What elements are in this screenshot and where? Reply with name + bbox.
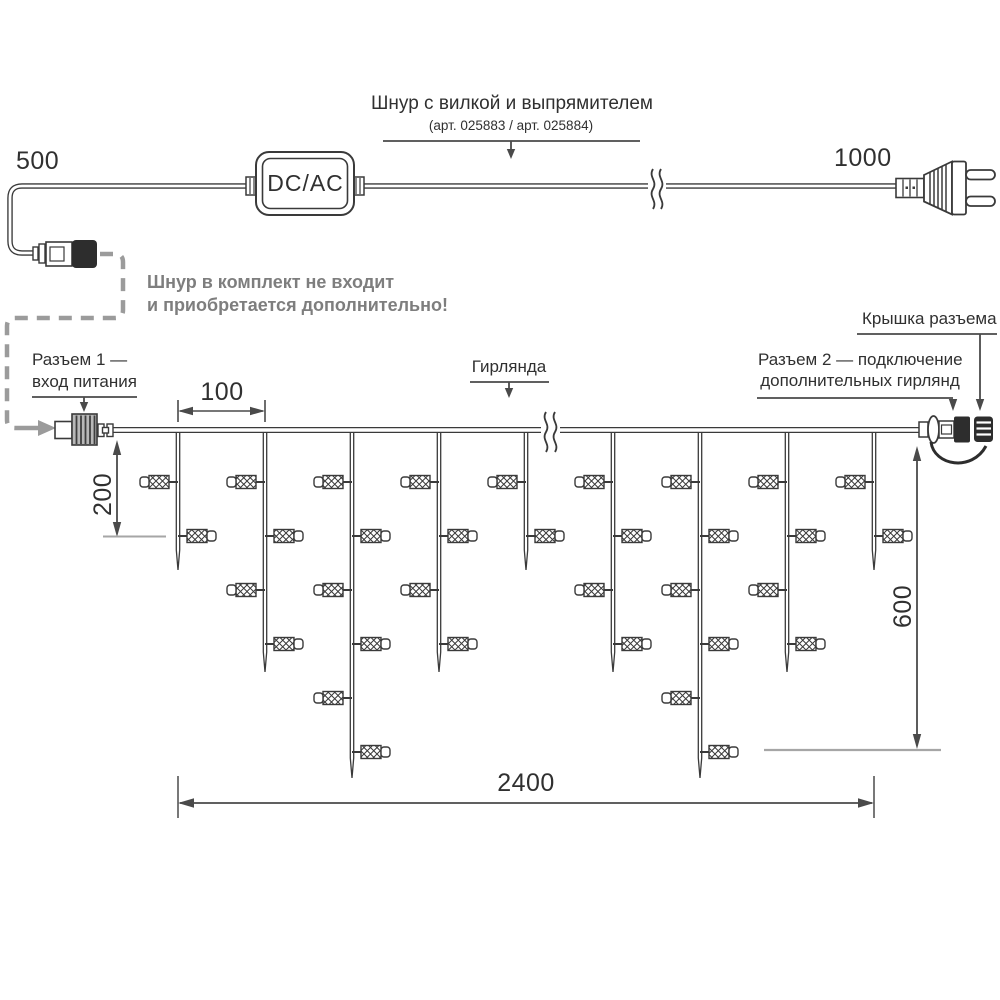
garland-drops xyxy=(140,433,912,778)
power-cord-connector xyxy=(33,240,97,268)
cap-label: Крышка разъема xyxy=(862,308,997,330)
led-bulb-icon xyxy=(796,530,816,543)
led-cap xyxy=(488,477,497,487)
led-bulb-icon xyxy=(448,530,468,543)
connector1-label-line1: Разъем 1 — xyxy=(32,349,137,371)
led-cap xyxy=(662,585,671,595)
plug-prong-top xyxy=(966,170,995,180)
cord-label: Шнур с вилкой и выпрямителем (арт. 02588… xyxy=(371,93,651,133)
led-bulb-icon xyxy=(535,530,555,543)
led-cap xyxy=(381,639,390,649)
garland-drop xyxy=(872,433,875,570)
led-cap xyxy=(729,747,738,757)
connector2-plug xyxy=(919,416,970,443)
connector2-label-line2: дополнительных гирлянд xyxy=(758,370,962,391)
dim-200-label: 200 xyxy=(89,473,118,516)
led-bulb-icon xyxy=(671,476,691,489)
leader-connector2-label xyxy=(757,398,957,411)
diagram-canvas: 500 1000 Шнур с вилкой и выпрямителем (а… xyxy=(0,0,1000,1000)
garland-drop xyxy=(698,433,701,778)
cap-tether xyxy=(931,442,986,463)
connector1-label: Разъем 1 — вход питания xyxy=(32,349,137,393)
connector1-label-line2: вход питания xyxy=(32,371,137,393)
led-cap xyxy=(207,531,216,541)
led-cap xyxy=(555,531,564,541)
led-cap xyxy=(662,477,671,487)
led-bulb-icon xyxy=(361,638,381,651)
leader-garland-label xyxy=(470,382,549,398)
led-cap xyxy=(816,531,825,541)
leader-connector1-label xyxy=(32,397,137,412)
dim-600-label: 600 xyxy=(889,585,918,628)
note-line2: и приобретается дополнительно! xyxy=(147,294,448,317)
led-bulb-icon xyxy=(883,530,903,543)
led-bulb-icon xyxy=(622,638,642,651)
cord-label-title: Шнур с вилкой и выпрямителем xyxy=(371,93,651,115)
led-bulb-icon xyxy=(236,476,256,489)
led-cap xyxy=(227,585,236,595)
led-cap xyxy=(314,693,323,703)
led-cap xyxy=(836,477,845,487)
garland-label: Гирлянда xyxy=(440,356,578,378)
led-bulb-icon xyxy=(845,476,865,489)
led-cap xyxy=(816,639,825,649)
garland-drop xyxy=(263,433,266,672)
plug-prong-bottom xyxy=(966,197,995,207)
cord-break-icon xyxy=(648,169,666,209)
led-cap xyxy=(401,477,410,487)
led-cap xyxy=(729,639,738,649)
note-line1: Шнур в комплект не входит xyxy=(147,271,448,294)
led-cap xyxy=(468,531,477,541)
led-cap xyxy=(294,531,303,541)
garland-drop xyxy=(437,433,440,672)
led-bulb-icon xyxy=(709,746,729,759)
led-cap xyxy=(314,477,323,487)
connector2-label: Разъем 2 — подключение дополнительных ги… xyxy=(758,349,962,391)
led-bulb-icon xyxy=(236,584,256,597)
led-cap xyxy=(381,747,390,757)
led-cap xyxy=(381,531,390,541)
led-cap xyxy=(642,531,651,541)
led-bulb-icon xyxy=(709,638,729,651)
led-cap xyxy=(575,477,584,487)
led-cap xyxy=(140,477,149,487)
led-cap xyxy=(729,531,738,541)
dashed-guide-line xyxy=(7,254,123,436)
led-bulb-icon xyxy=(671,584,691,597)
led-bulb-icon xyxy=(187,530,207,543)
dim-100-label: 100 xyxy=(179,378,265,407)
led-cap xyxy=(575,585,584,595)
led-cap xyxy=(662,693,671,703)
led-bulb-icon xyxy=(796,638,816,651)
led-cap xyxy=(903,531,912,541)
led-bulb-icon xyxy=(361,530,381,543)
converter-label: DC/AC xyxy=(257,170,354,197)
led-bulb-icon xyxy=(323,584,343,597)
led-cap xyxy=(642,639,651,649)
led-cap xyxy=(294,639,303,649)
guide-arrow-icon xyxy=(38,420,56,436)
led-cap xyxy=(401,585,410,595)
led-cap xyxy=(314,585,323,595)
led-bulb-icon xyxy=(671,692,691,705)
led-cap xyxy=(749,585,758,595)
led-bulb-icon xyxy=(323,692,343,705)
dim-2400-label: 2400 xyxy=(468,769,584,798)
note-text: Шнур в комплект не входит и приобретаетс… xyxy=(147,271,448,317)
led-bulb-icon xyxy=(410,584,430,597)
led-bulb-icon xyxy=(323,476,343,489)
garland-drop xyxy=(350,433,353,778)
led-cap xyxy=(468,639,477,649)
led-bulb-icon xyxy=(497,476,517,489)
led-bulb-icon xyxy=(709,530,729,543)
dim-500-label: 500 xyxy=(16,147,59,176)
garland-drop xyxy=(611,433,614,672)
led-bulb-icon xyxy=(584,476,604,489)
led-bulb-icon xyxy=(149,476,169,489)
led-bulb-icon xyxy=(758,584,778,597)
led-bulb-icon xyxy=(448,638,468,651)
led-bulb-icon xyxy=(361,746,381,759)
connector1-plug xyxy=(55,414,113,445)
led-bulb-icon xyxy=(622,530,642,543)
led-bulb-icon xyxy=(758,476,778,489)
led-cap xyxy=(227,477,236,487)
led-bulb-icon xyxy=(274,638,294,651)
power-plug-icon xyxy=(896,162,995,215)
garland-drop xyxy=(176,433,179,570)
garland-break-icon xyxy=(541,412,560,452)
led-bulb-icon xyxy=(410,476,430,489)
garland-drop xyxy=(524,433,527,570)
led-bulb-icon xyxy=(584,584,604,597)
connector2-label-line1: Разъем 2 — подключение xyxy=(758,349,962,370)
leader-cord-label xyxy=(383,141,640,159)
garland-drop xyxy=(785,433,788,672)
led-bulb-icon xyxy=(274,530,294,543)
dim-1000-label: 1000 xyxy=(834,144,892,173)
cord-label-articles: (арт. 025883 / арт. 025884) xyxy=(371,118,651,133)
led-cap xyxy=(749,477,758,487)
